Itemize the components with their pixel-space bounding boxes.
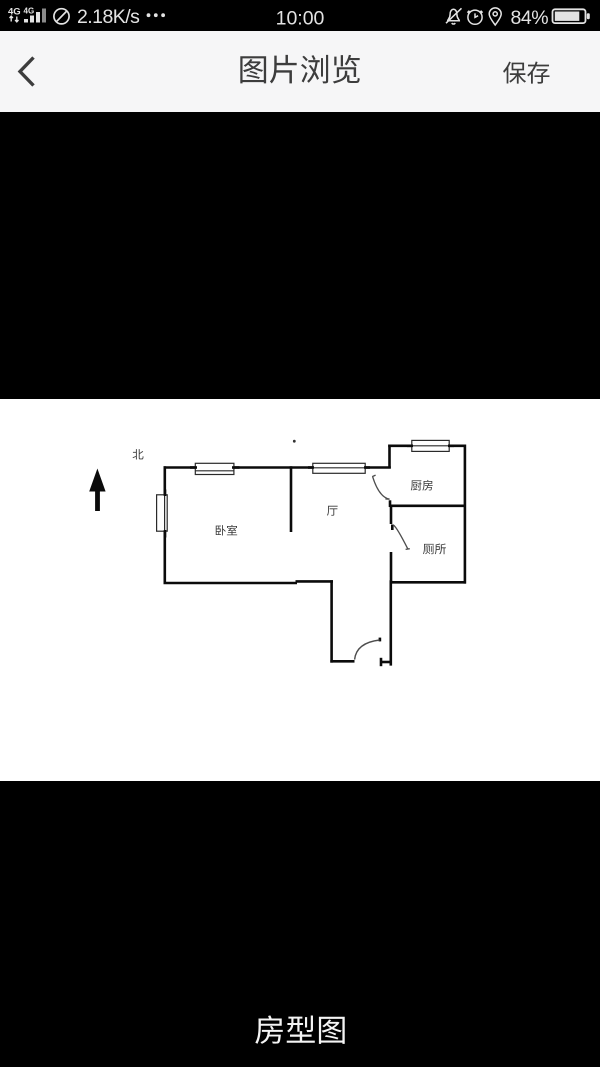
svg-text:4G: 4G <box>8 7 21 18</box>
svg-text:4G: 4G <box>24 7 35 16</box>
svg-text:10:00: 10:00 <box>276 7 325 29</box>
svg-text:84%: 84% <box>511 7 549 29</box>
svg-text:2.18K/s: 2.18K/s <box>77 6 140 28</box>
